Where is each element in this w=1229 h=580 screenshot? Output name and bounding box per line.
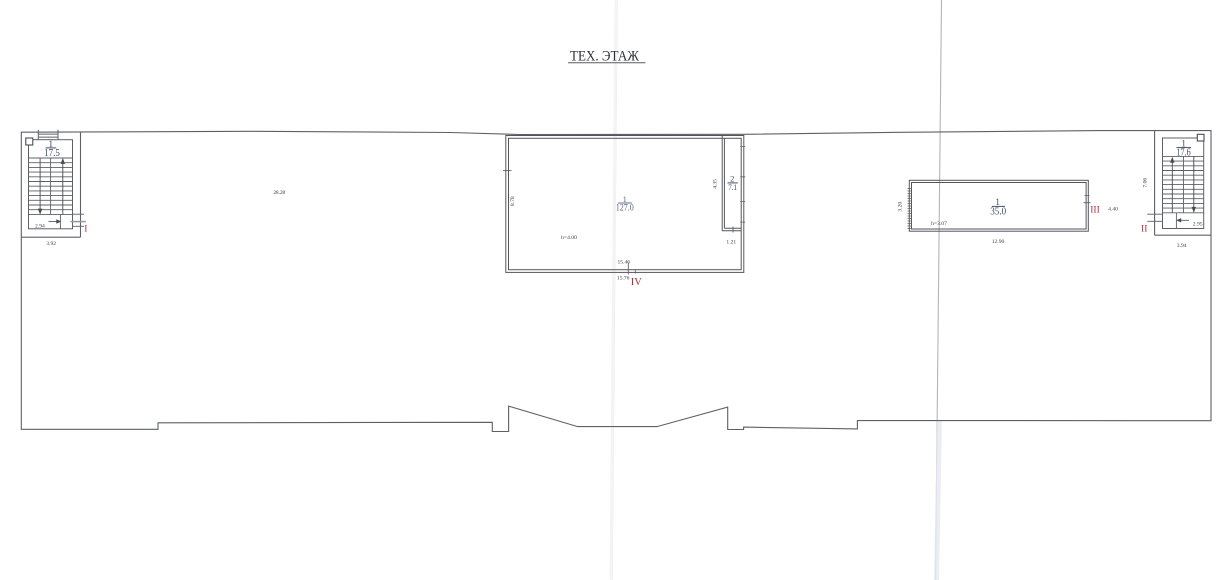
svg-text:h=3.07: h=3.07 [931,221,947,227]
svg-text:7.1: 7.1 [728,182,737,192]
svg-text:2.95: 2.95 [1193,221,1203,227]
svg-text:h=4.00: h=4.00 [561,235,577,241]
svg-text:3.94: 3.94 [1177,243,1187,249]
svg-text:15.76: 15.76 [617,276,630,282]
svg-text:2.94: 2.94 [35,224,45,230]
svg-text:IV: IV [631,277,642,288]
svg-text:8.78: 8.78 [510,196,516,206]
svg-text:1.21: 1.21 [726,239,736,245]
svg-text:15.46: 15.46 [618,260,631,266]
svg-text:II: II [1141,224,1147,234]
svg-text:35.0: 35.0 [990,206,1006,217]
svg-text:127.0: 127.0 [616,203,634,213]
svg-text:7.06: 7.06 [1143,178,1149,188]
svg-text:12.90: 12.90 [992,239,1005,245]
svg-text:4.35: 4.35 [713,179,719,189]
svg-text:28.28: 28.28 [273,190,285,196]
svg-text:4.40: 4.40 [1108,206,1118,212]
svg-text:3.20: 3.20 [898,202,904,212]
svg-text:III: III [1090,206,1100,216]
svg-text:3.92: 3.92 [46,241,56,247]
svg-text:I: I [84,224,87,234]
svg-text:ТЕХ. ЭТАЖ: ТЕХ. ЭТАЖ [570,49,639,65]
